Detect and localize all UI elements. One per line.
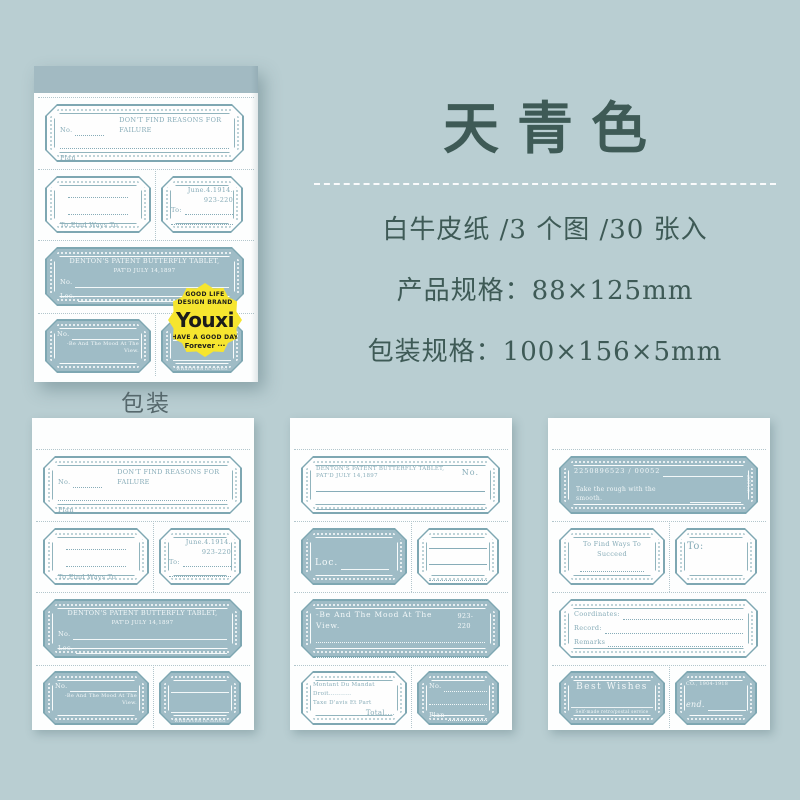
- code-text: 923-220: [169, 548, 231, 558]
- label-mood-large: -Be And The Mood At The View.923-220 Jun…: [301, 599, 500, 658]
- well-caption: WHATEVER IS GOING WELL.: [173, 366, 231, 378]
- loc-label: Loc.: [58, 644, 73, 654]
- date-text: June.4.1914.: [171, 186, 233, 196]
- label-succeed: To Find Ways To Succeed: [45, 176, 151, 233]
- perforation-line: [36, 521, 250, 522]
- write-line: [58, 494, 227, 501]
- write-line: [580, 565, 644, 572]
- write-line: [316, 636, 485, 643]
- sheet-design-a: No.DON'T FIND REASONS FOR FAILURE Plan T…: [32, 418, 254, 730]
- write-line: [72, 333, 139, 340]
- loc-label: Loc.: [315, 557, 338, 571]
- to-label: To:: [687, 539, 745, 554]
- write-line: [708, 704, 746, 711]
- end-label: end.: [686, 699, 705, 711]
- write-line: [448, 714, 487, 721]
- no-label: No.: [60, 126, 72, 136]
- notepad-binding-strip: [34, 66, 258, 93]
- perforation-line: [36, 449, 250, 450]
- denton-title2: PAT'D JULY 14,1897: [58, 619, 227, 627]
- mood-caption: -Be And The Mood At The View.: [57, 341, 139, 356]
- perforation-line-vertical: [155, 313, 156, 376]
- write-line: [171, 686, 229, 693]
- code-text: 923-220: [458, 612, 486, 632]
- date-text: June.4.1914.: [169, 538, 231, 548]
- label-mandat: Montant Du Mandat Droit........... Taxe …: [301, 671, 407, 725]
- record-label: Record:: [574, 624, 602, 634]
- label-serial: 2250896523 / 00052 2894.r. Take the roug…: [559, 456, 758, 514]
- mood-caption: -Be And The Mood At The View.: [55, 693, 137, 708]
- succeed-caption: To Find Ways To Succeed: [60, 221, 136, 241]
- label-succeed: To Find Ways To Succeed: [43, 528, 149, 585]
- write-line: [75, 129, 104, 136]
- product-info-panel: 天青色 白牛皮纸 /3 个图 /30 张入 产品规格：88×125mm 包装规格…: [310, 0, 780, 368]
- badge-line: Forever ···: [185, 342, 226, 350]
- write-line: [73, 633, 227, 640]
- coordinates-label: Coordinates:: [574, 610, 620, 620]
- denton-title2: PAT'D JULY 14,1897: [60, 267, 229, 275]
- serial-number: 2250896523 / 00052: [574, 467, 660, 477]
- write-line: [429, 698, 487, 705]
- perforation-line-vertical: [153, 665, 154, 728]
- write-line: [580, 581, 644, 588]
- label-failure: No.DON'T FIND REASONS FOR FAILURE Plan: [43, 456, 242, 514]
- denton-title1: DENTON'S PATENT BUTTERFLY TABLET,: [60, 257, 229, 267]
- write-line: [66, 543, 126, 550]
- spec-product-size: 产品规格：88×125mm: [310, 270, 780, 307]
- write-line: [185, 208, 233, 215]
- spec-material: 白牛皮纸 /3 个图 /30 张入: [310, 209, 780, 246]
- write-line: [66, 560, 126, 567]
- label-coordinates: Coordinates: Record: Remarks: [559, 599, 758, 658]
- wishes-subtitle: Self-made retro/postal service: [571, 707, 653, 715]
- label-succeed: To Find Ways To Succeed: [559, 528, 665, 585]
- write-line: [60, 142, 229, 149]
- write-line: [608, 640, 743, 647]
- plan-label: Plan: [60, 154, 76, 164]
- write-line: [444, 685, 487, 692]
- perforation-line: [552, 592, 766, 593]
- no-label: No.: [55, 682, 67, 692]
- perforation-line: [552, 521, 766, 522]
- perforation-line: [294, 521, 508, 522]
- write-line: [173, 354, 231, 361]
- code-text: 923-220: [171, 196, 233, 206]
- write-line: [605, 627, 743, 634]
- perforation-line: [36, 665, 250, 666]
- no-label: No.: [58, 630, 70, 640]
- write-line: [429, 558, 487, 565]
- badge-line: DESIGN BRAND: [177, 299, 232, 306]
- total-label: Total....: [313, 708, 395, 719]
- label-date-to: June.4.1914. 923-220 To:: [161, 176, 243, 233]
- label-mood: No. -Be And The Mood At The View.: [43, 671, 149, 725]
- label-best-wishes: Best Wishes Self-made retro/postal servi…: [559, 671, 665, 725]
- no-label: No.: [429, 682, 441, 692]
- write-line: [73, 481, 102, 488]
- write-line: [171, 218, 233, 225]
- write-line: [623, 613, 743, 620]
- succeed-caption: To Find Ways To Succeed: [58, 573, 134, 593]
- side-mark: 2894.r.: [743, 475, 750, 493]
- perforation-line: [38, 240, 254, 241]
- write-line: [429, 542, 487, 549]
- label-title: DON'T FIND REASONS FOR FAILURE: [117, 468, 227, 488]
- badge-line: GOOD LIFE: [185, 291, 224, 298]
- denton-title2: PAT'D JULY 14,1897: [316, 473, 485, 480]
- write-line: [341, 563, 389, 570]
- perforation-line: [294, 449, 508, 450]
- label-mood: No. -Be And The Mood At The View.: [45, 319, 151, 373]
- no-label: No.: [60, 278, 72, 288]
- youxi-logo: Youxi: [176, 308, 234, 332]
- perforation-line-vertical: [155, 169, 156, 240]
- write-line: [70, 685, 137, 692]
- write-line: [68, 208, 128, 215]
- label-going-well: WHATEVER IS GOING WELL.: [159, 671, 241, 725]
- well-caption: WHATEVER IS GOING WELL.: [171, 718, 229, 730]
- product-detail-image: { "colors": { "background": "#b9ced2", "…: [0, 0, 800, 800]
- write-line: [77, 508, 227, 515]
- write-line: [169, 570, 231, 577]
- write-line: [316, 485, 485, 492]
- sheet-design-c: 2250896523 / 00052 2894.r. Take the roug…: [548, 418, 770, 730]
- label-loc: Loc.: [301, 528, 407, 585]
- perforation-line: [294, 665, 508, 666]
- co-label: CO., 1904-1918: [686, 681, 746, 688]
- spec-package-size: 包装规格：100×156×5mm: [310, 331, 780, 368]
- write-line: [68, 191, 128, 198]
- denton-title1: DENTON'S PATENT BUTTERFLY TABLET,: [58, 609, 227, 619]
- perforation-line: [38, 97, 254, 98]
- no-label: No.: [58, 478, 70, 488]
- wishes-title: Best Wishes: [569, 681, 655, 695]
- label-co-end: CO., 1904-1918 end.: [675, 671, 757, 725]
- package-mockup-sheet: No.DON'T FIND REASONS FOR FAILURE Plan T…: [34, 66, 258, 382]
- write-line: [690, 496, 741, 503]
- plan-label: Plan: [429, 711, 445, 721]
- plan-label: Plan: [58, 506, 74, 516]
- perforation-line: [552, 665, 766, 666]
- badge-line: HAVE A GOOD DAY: [172, 334, 239, 341]
- write-line: [76, 647, 227, 654]
- perforation-line: [552, 449, 766, 450]
- label-date-to: June.4.1914. 923-220 To:: [159, 528, 241, 585]
- perforation-line-vertical: [153, 521, 154, 592]
- label-failure: No.DON'T FIND REASONS FOR FAILURE Plan: [45, 104, 244, 162]
- rough-caption: Take the rough with the smooth.: [576, 485, 683, 503]
- mood-caption: -Be And The Mood At The View.: [316, 609, 452, 632]
- package-caption: 包装: [34, 384, 258, 418]
- perforation-line: [38, 169, 254, 170]
- write-line: [316, 651, 485, 658]
- mandat-line: Droit...........: [313, 690, 395, 699]
- write-line: [663, 470, 743, 477]
- perforation-line-vertical: [411, 665, 412, 728]
- write-line: [316, 503, 485, 510]
- perforation-line-vertical: [669, 665, 670, 728]
- succeed-caption: To Find Ways To Succeed: [574, 540, 650, 560]
- perforation-line: [294, 592, 508, 593]
- label-denton-white: No. DENTON'S PATENT BUTTERFLY TABLET, PA…: [301, 456, 500, 514]
- perforation-line: [36, 592, 250, 593]
- no-label: No.: [462, 467, 479, 479]
- write-line: [79, 156, 229, 163]
- perforation-line-vertical: [411, 521, 412, 592]
- to-label: To:: [169, 558, 180, 568]
- label-to: To:: [675, 528, 757, 585]
- label-title: DON'T FIND REASONS FOR FAILURE: [119, 116, 229, 136]
- product-title: 天青色: [310, 100, 780, 159]
- date-text: June.4.1914.: [316, 659, 485, 669]
- write-line: [429, 574, 487, 581]
- dashed-divider: [314, 183, 776, 185]
- write-line: [171, 706, 229, 713]
- loc-label: Loc.: [60, 292, 75, 302]
- denton-title1: DENTON'S PATENT BUTTERFLY TABLET,: [316, 466, 446, 473]
- no-label: No.: [57, 330, 69, 340]
- mandat-line: Montant Du Mandat: [313, 681, 395, 690]
- sheet-design-b: No. DENTON'S PATENT BUTTERFLY TABLET, PA…: [290, 418, 512, 730]
- remarks-label: Remarks: [574, 638, 605, 648]
- write-line: [183, 560, 231, 567]
- mandat-line: Taxe D'avis Et Part: [313, 699, 395, 708]
- to-label: To:: [171, 206, 182, 216]
- label-denton: DENTON'S PATENT BUTTERFLY TABLET, PAT'D …: [43, 599, 242, 658]
- perforation-line-vertical: [669, 521, 670, 592]
- label-no-plan: No. Plan: [417, 671, 499, 725]
- label-blank-lines: [417, 528, 499, 585]
